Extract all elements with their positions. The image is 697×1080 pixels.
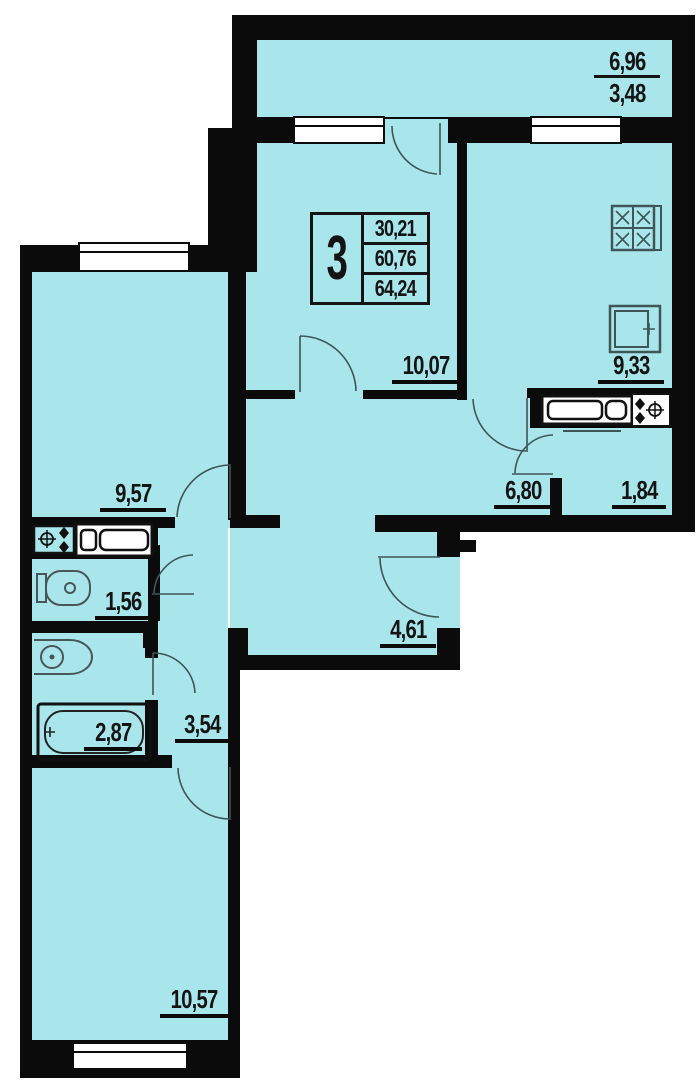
door-arc-living bbox=[300, 336, 356, 392]
loggia-area-full: 6,96 bbox=[609, 48, 645, 74]
label-underline bbox=[380, 644, 436, 648]
area-label-corridor: 4,61 bbox=[380, 616, 436, 648]
rooms-count: 3 bbox=[326, 229, 347, 289]
duct-icon bbox=[76, 524, 152, 556]
door-arc-storage bbox=[512, 431, 621, 474]
apartment-summary-box: 3 30,21 60,76 64,24 bbox=[310, 212, 430, 305]
legend-row: 64,24 bbox=[364, 272, 427, 302]
area-label-living: 10,07 bbox=[392, 352, 460, 384]
door-arc-left-bedroom bbox=[177, 464, 230, 518]
fixtures-and-doors bbox=[0, 0, 697, 1080]
legend-row: 30,21 bbox=[364, 215, 427, 242]
label-underline bbox=[160, 1014, 228, 1018]
label-underline bbox=[84, 747, 142, 751]
areas-cell: 30,21 60,76 64,24 bbox=[364, 215, 427, 302]
label-underline bbox=[598, 380, 664, 384]
area-label-left-bedroom: 9,57 bbox=[100, 480, 166, 512]
stove-icon bbox=[612, 206, 661, 250]
area-label-loggia: 6,96 3,48 bbox=[594, 48, 660, 106]
door-arc-wc bbox=[152, 555, 194, 594]
door-arc-kitchen bbox=[473, 398, 527, 452]
rooms-count-cell: 3 bbox=[313, 215, 364, 302]
legend-row: 60,76 bbox=[364, 242, 427, 272]
area-label-hall: 6,80 bbox=[494, 477, 552, 509]
washbasin-icon bbox=[34, 640, 92, 674]
label-underline bbox=[100, 508, 166, 512]
toilet-icon bbox=[37, 571, 90, 605]
vent-shaft-icon bbox=[632, 394, 670, 426]
area-label-bottom-bedroom: 10,57 bbox=[160, 986, 228, 1018]
door-arc-bathroom bbox=[153, 653, 195, 695]
label-underline bbox=[392, 380, 460, 384]
area-label-kitchen: 9,33 bbox=[598, 352, 664, 384]
label-underline bbox=[494, 505, 552, 509]
door-arc-bottom-bedroom bbox=[178, 767, 230, 820]
loggia-area-reduced: 3,48 bbox=[609, 80, 645, 106]
door-arc-entry bbox=[378, 557, 440, 617]
duct-icon bbox=[542, 396, 632, 424]
sink-icon bbox=[610, 306, 660, 352]
area-label-wc: 1,56 bbox=[95, 588, 151, 620]
area-label-storage: 1,84 bbox=[612, 477, 666, 509]
area-label-inner-hall: 3,54 bbox=[175, 711, 229, 743]
door-arc-balcony bbox=[392, 123, 440, 175]
vent-shaft-icon bbox=[34, 526, 74, 553]
label-underline bbox=[175, 739, 229, 743]
label-underline bbox=[95, 616, 151, 620]
floor-plan: 6,96 3,48 3 30,21 60,76 64,24 10,07 9,33… bbox=[0, 0, 697, 1080]
label-underline bbox=[612, 505, 666, 509]
area-label-bathroom: 2,87 bbox=[84, 719, 142, 751]
